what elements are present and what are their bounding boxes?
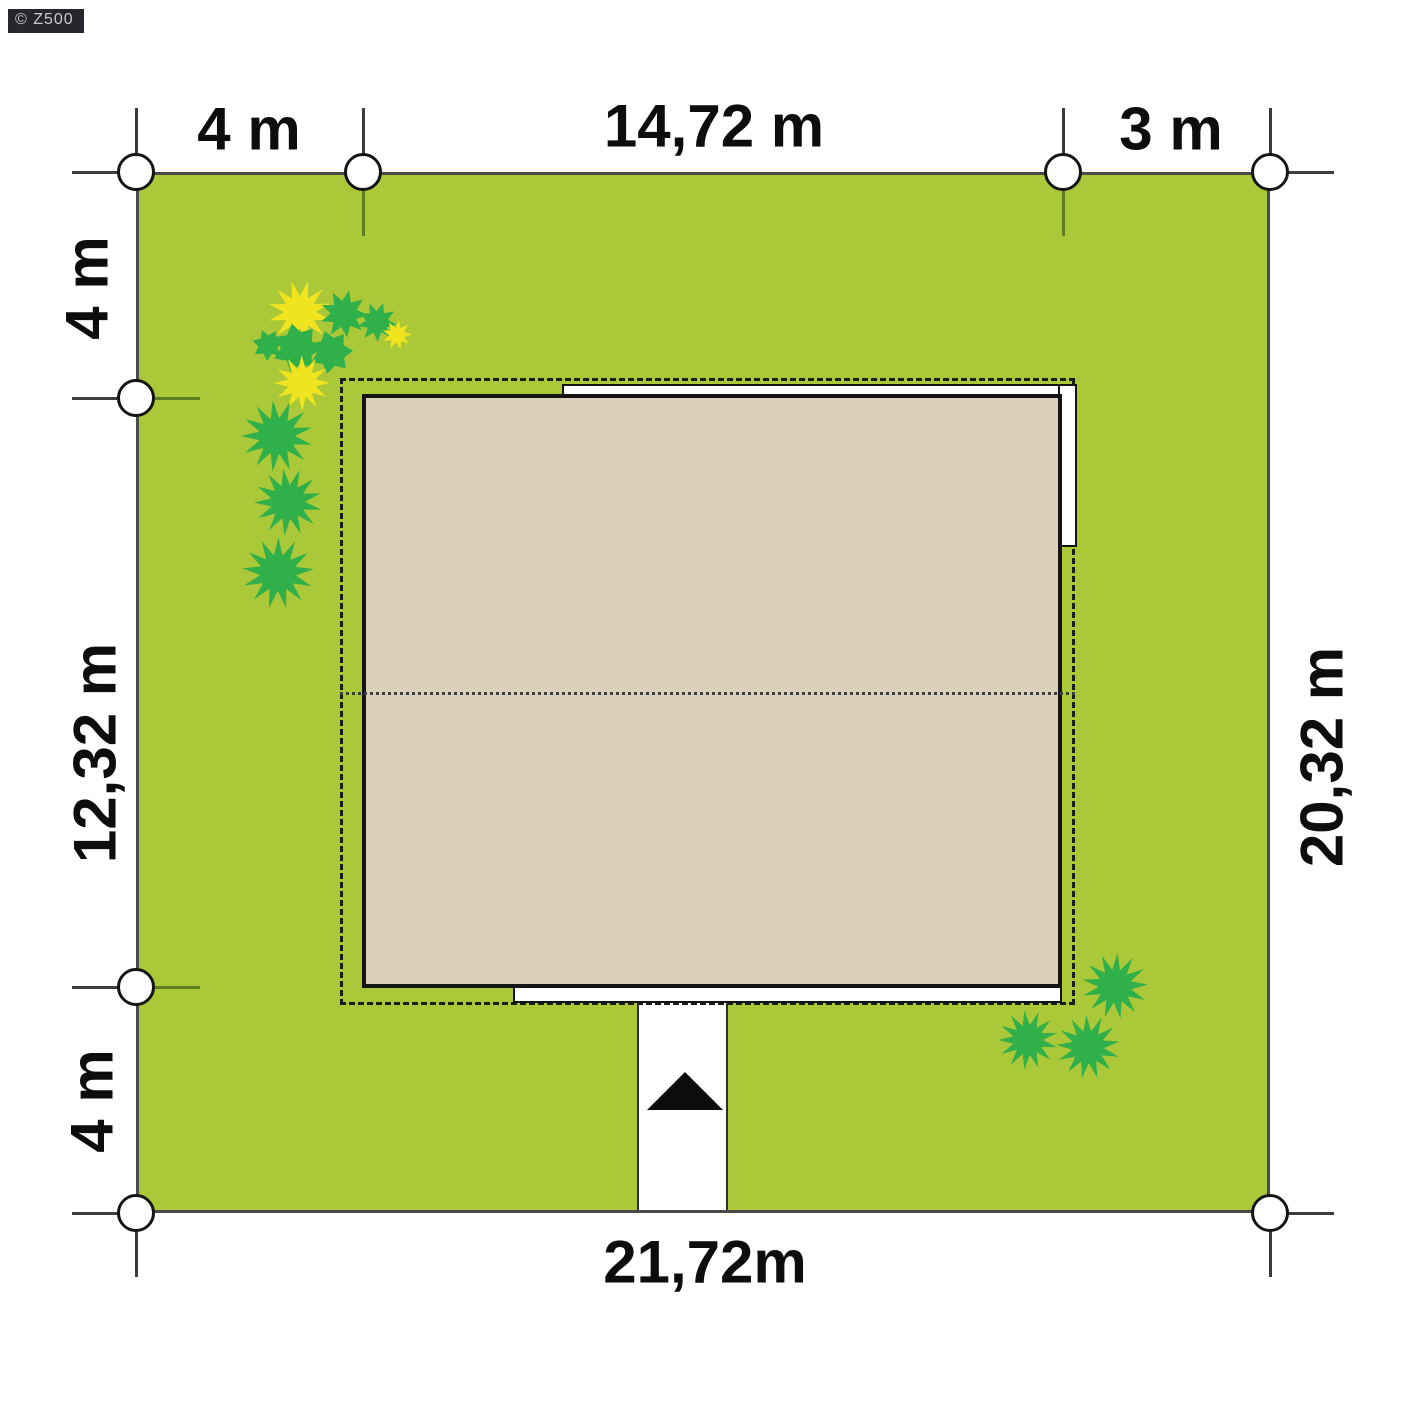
dimension-tick — [1270, 1212, 1334, 1215]
entrance-arrow-icon — [647, 1072, 723, 1110]
dimension-tick — [72, 986, 136, 989]
dimension-tick — [1270, 171, 1334, 174]
dimension-top-right: 3 m — [1119, 95, 1222, 164]
dimension-tick — [1062, 108, 1065, 172]
dimension-tick — [1269, 1213, 1272, 1277]
dimension-left-middle: 12,32 m — [61, 643, 130, 863]
dimension-tick — [72, 1212, 136, 1215]
dimension-left-top: 4 m — [53, 236, 122, 339]
dimension-tick — [72, 397, 136, 400]
dimension-left-bottom: 4 m — [58, 1049, 127, 1152]
dimension-top-left: 4 m — [197, 95, 300, 164]
roof-ridge-line — [340, 692, 1075, 695]
dimension-top-middle: 14,72 m — [604, 92, 824, 161]
dimension-tick — [362, 108, 365, 172]
dimension-tick — [135, 1213, 138, 1277]
z500-watermark: © Z500 — [8, 9, 84, 33]
dimension-bottom: 21,72m — [603, 1228, 807, 1297]
dimension-tick — [135, 108, 138, 172]
site-plan: © Z500 4 m 14,72 m 3 m 4 m 12,32 m 4 m 2… — [0, 0, 1403, 1403]
dimension-right-side: 20,32 m — [1288, 647, 1357, 867]
dimension-tick — [72, 171, 136, 174]
dimension-tick — [1269, 108, 1272, 172]
house-roof — [362, 394, 1062, 988]
